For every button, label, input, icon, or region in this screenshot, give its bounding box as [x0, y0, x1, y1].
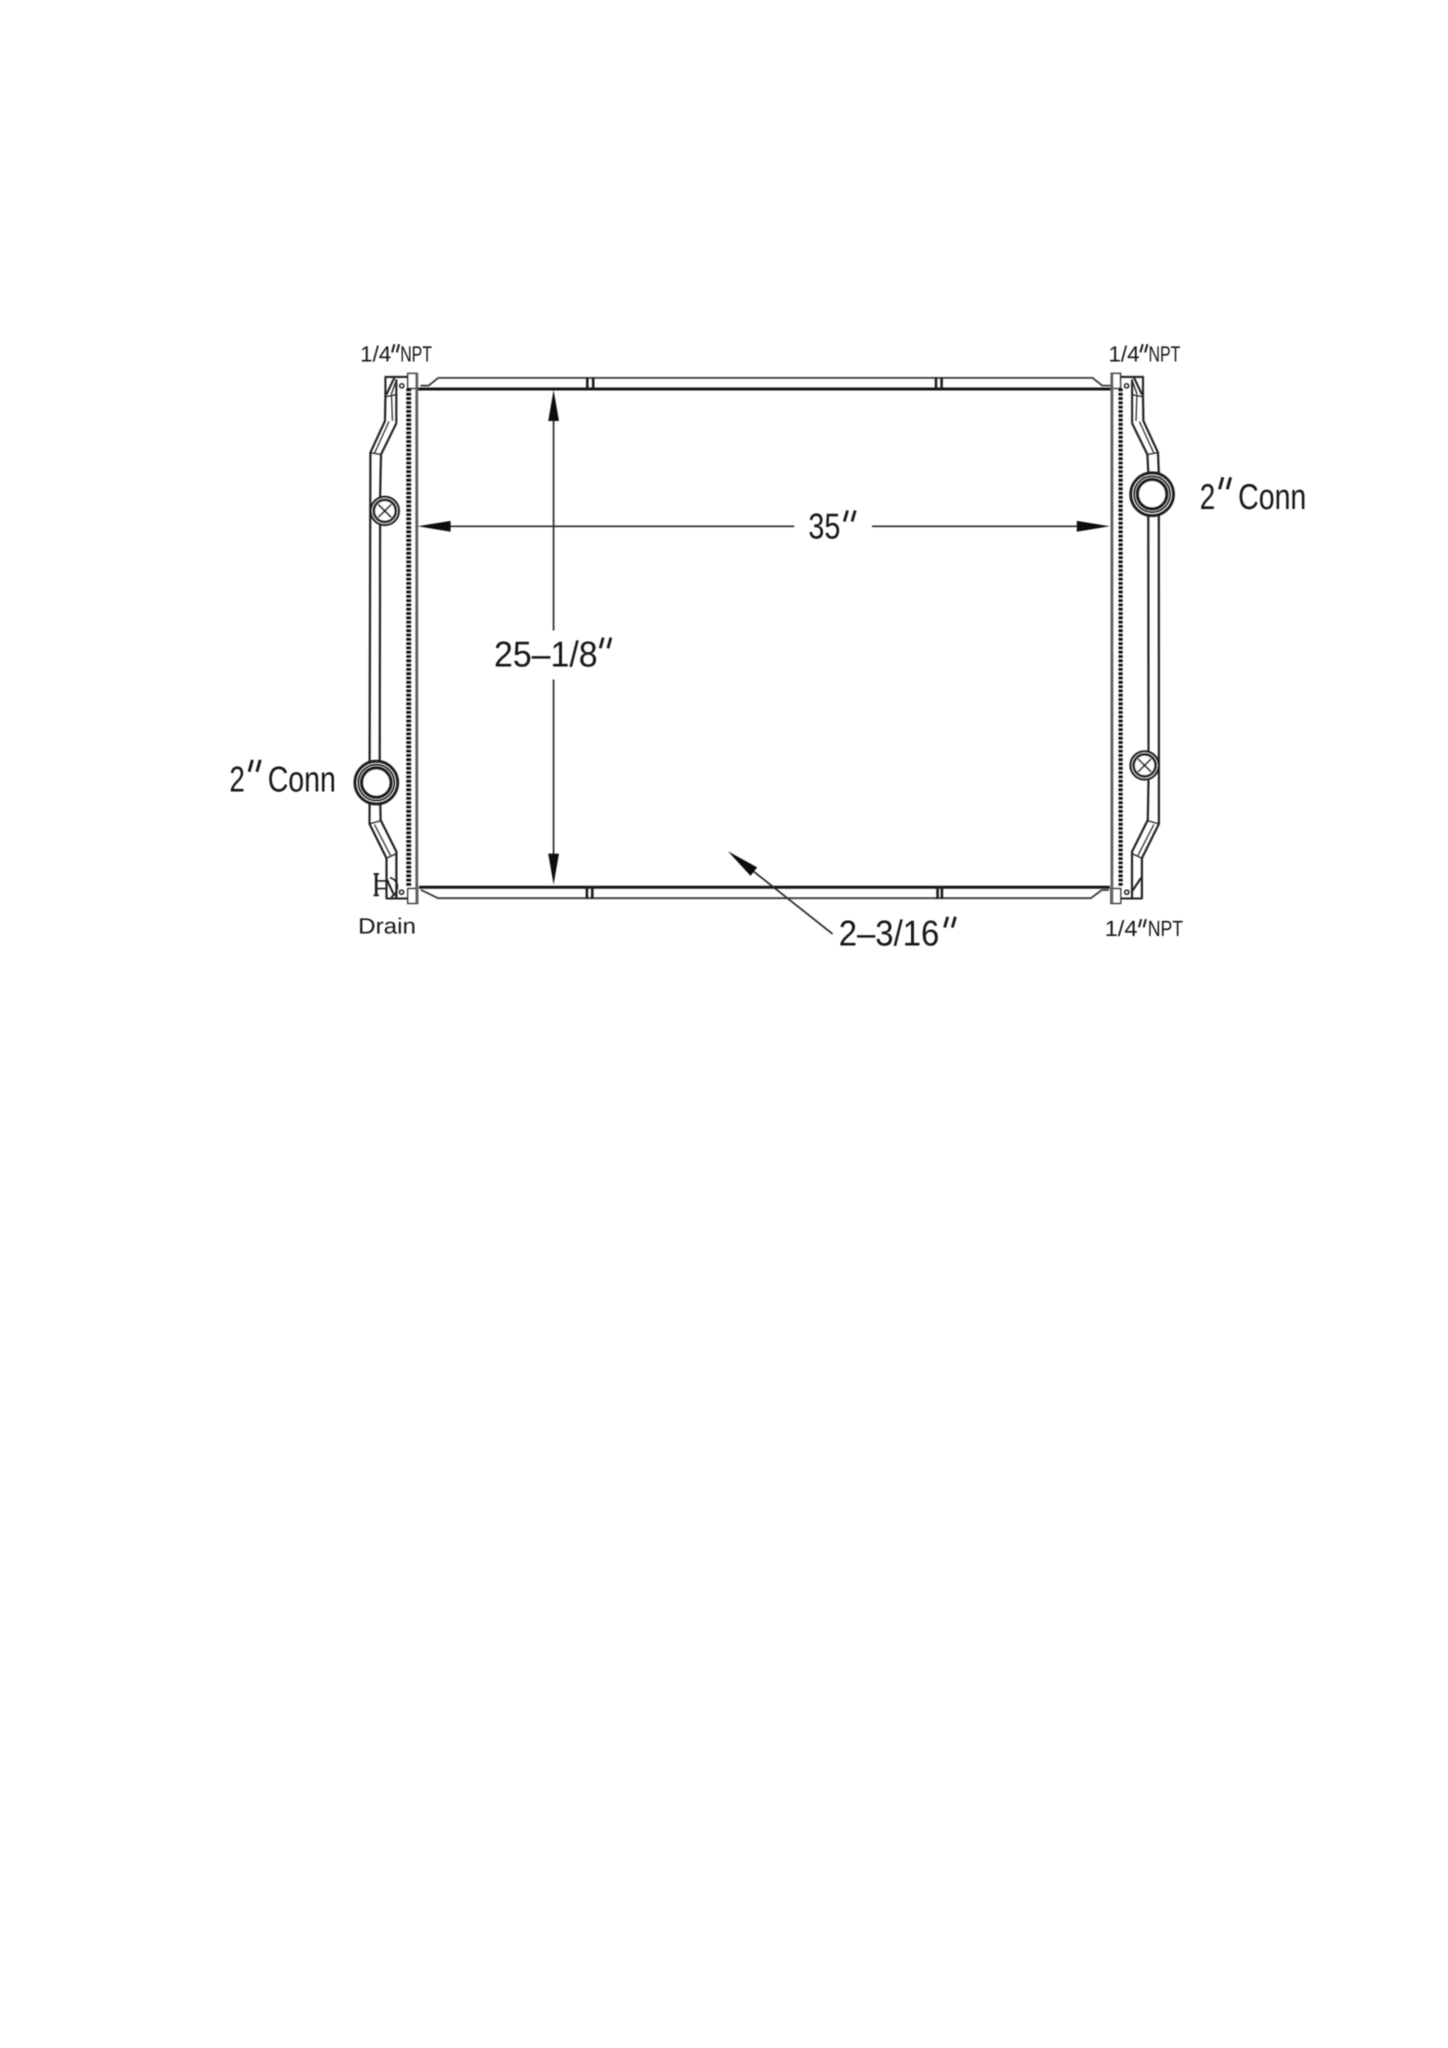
svg-text:Conn: Conn	[1238, 476, 1306, 517]
svg-text:NPT: NPT	[1148, 916, 1183, 941]
svg-text:1/4: 1/4	[1105, 916, 1138, 941]
svg-text:NPT: NPT	[1149, 341, 1181, 366]
svg-text:35: 35	[808, 506, 840, 547]
svg-text:1/4: 1/4	[360, 341, 391, 366]
svg-text:25–1/8: 25–1/8	[494, 633, 598, 674]
svg-text:Conn: Conn	[268, 759, 336, 800]
svg-text:NPT: NPT	[400, 341, 432, 366]
svg-text:Drain: Drain	[358, 913, 416, 938]
svg-text:2: 2	[1200, 476, 1216, 517]
svg-text:1/4: 1/4	[1109, 341, 1140, 366]
svg-text:2: 2	[229, 759, 245, 800]
svg-text:2–3/16: 2–3/16	[839, 913, 940, 954]
